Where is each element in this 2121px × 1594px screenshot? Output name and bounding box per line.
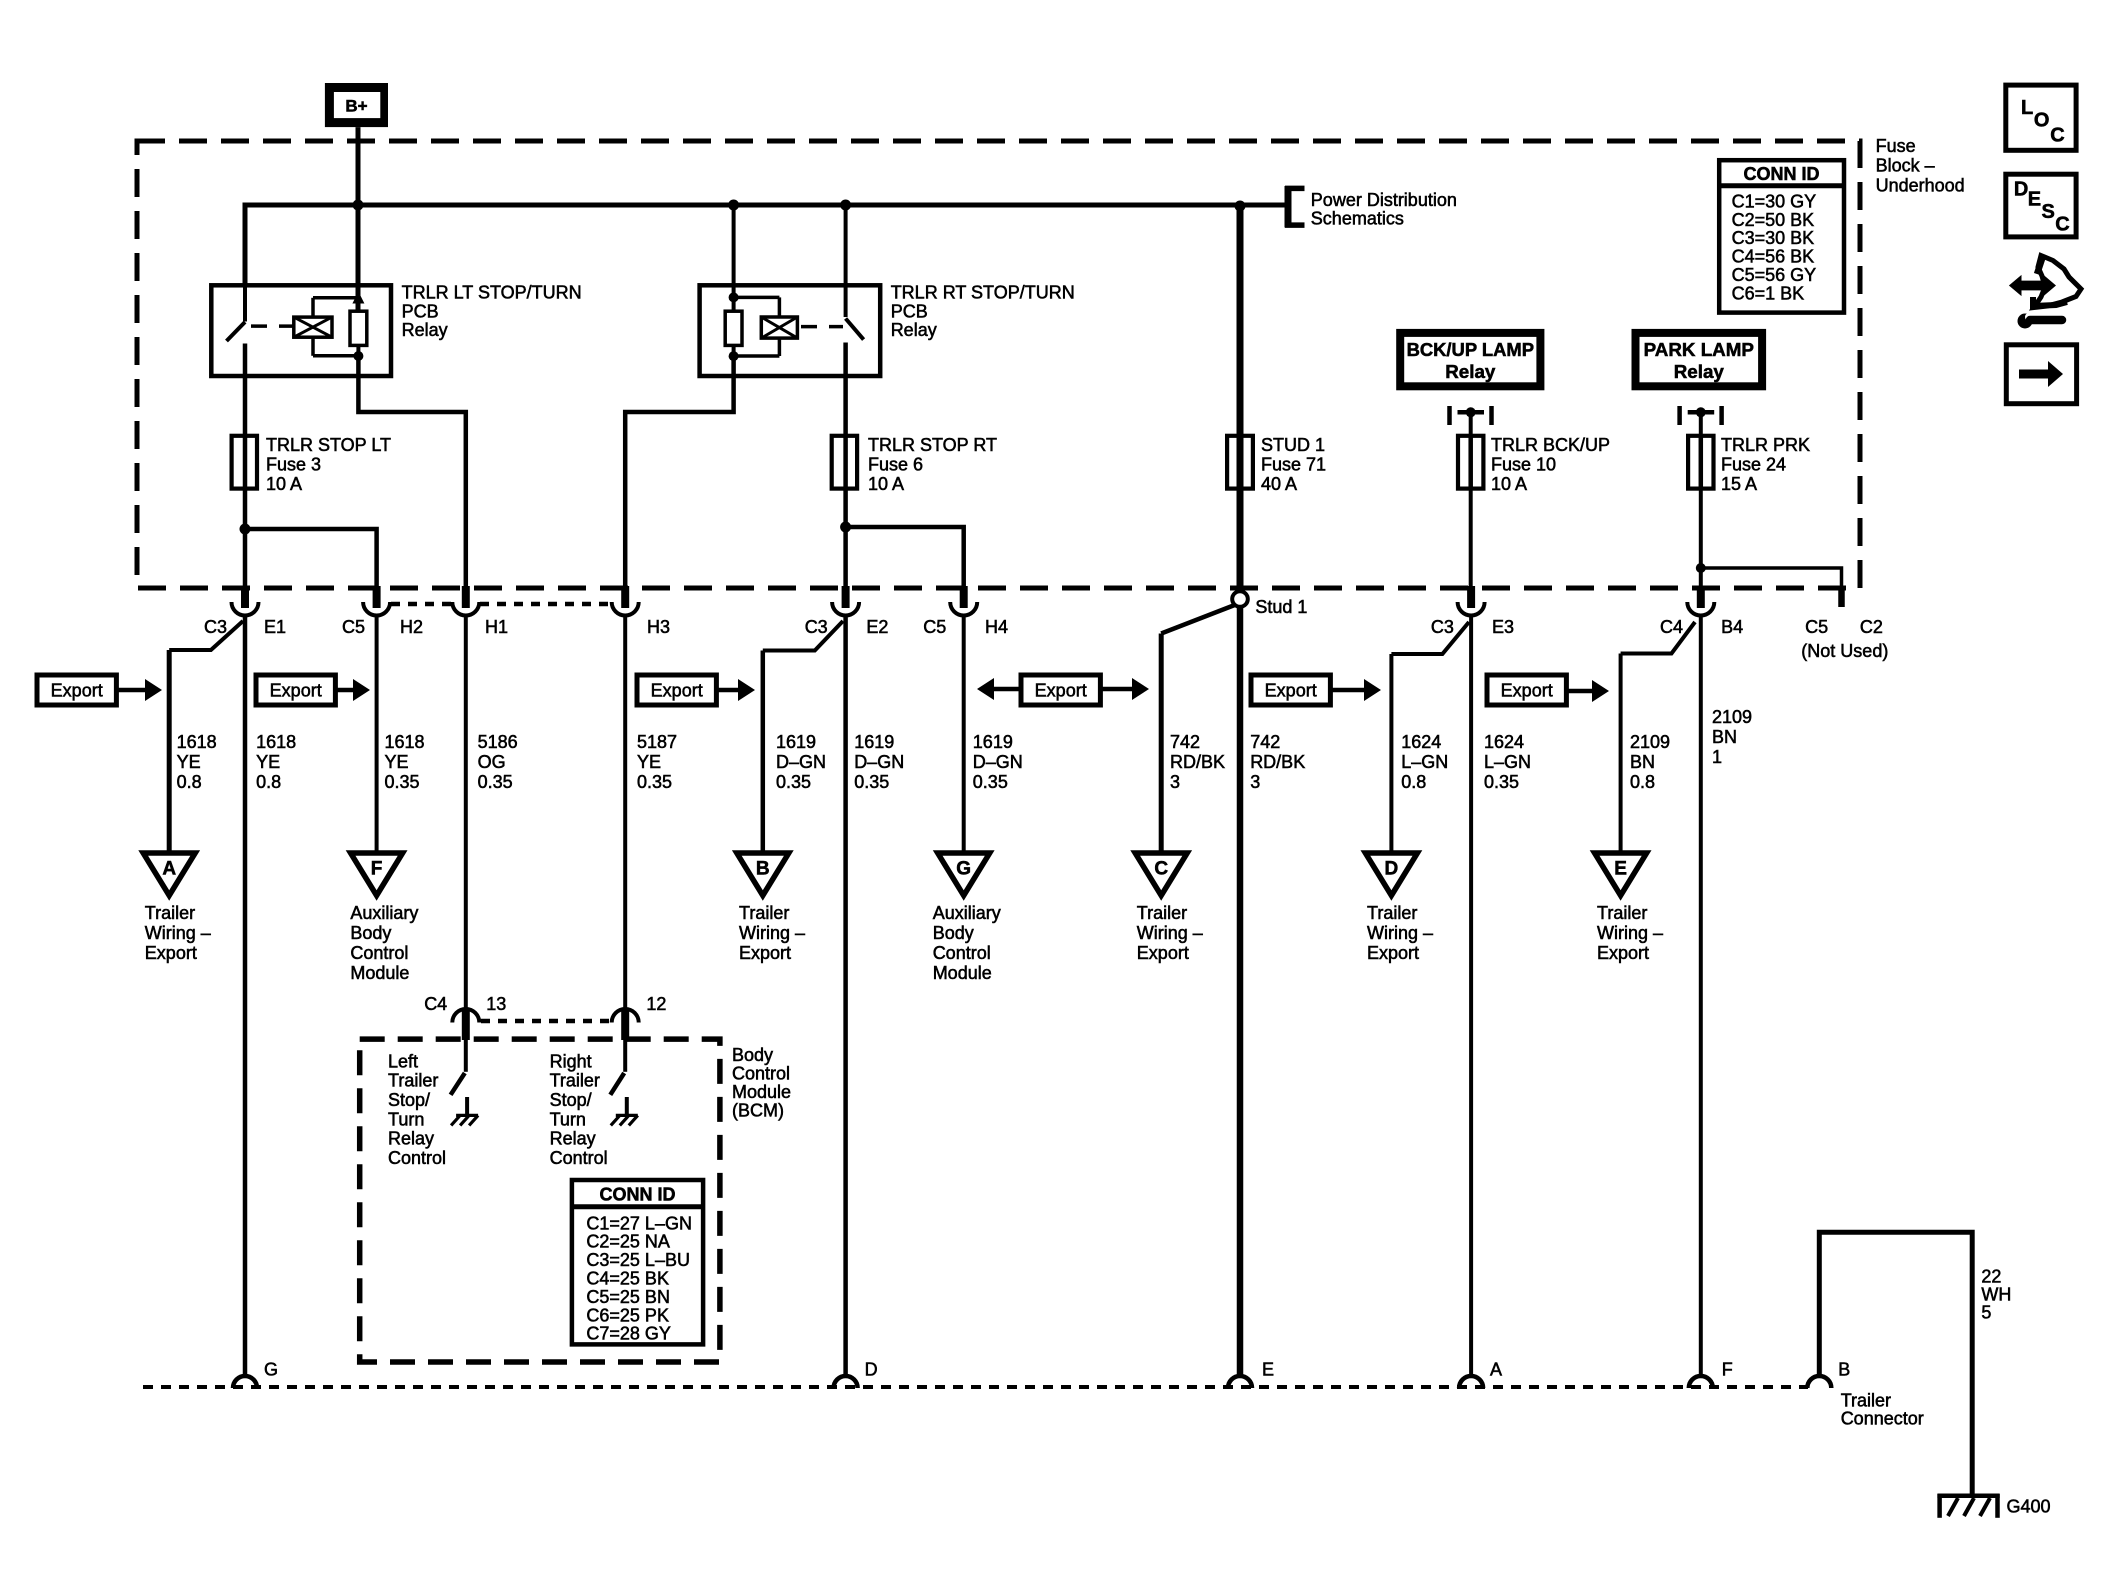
svg-text:Export: Export xyxy=(1367,943,1419,963)
svg-text:0.35: 0.35 xyxy=(637,772,672,792)
svg-text:Wiring –: Wiring – xyxy=(1137,923,1203,943)
svg-text:742: 742 xyxy=(1250,732,1280,752)
svg-text:C: C xyxy=(2050,125,2064,147)
svg-text:742: 742 xyxy=(1170,732,1200,752)
svg-text:40 A: 40 A xyxy=(1261,474,1297,494)
svg-text:Fuse 24: Fuse 24 xyxy=(1721,454,1786,474)
svg-text:C5: C5 xyxy=(1805,617,1828,637)
svg-text:Connector: Connector xyxy=(1841,1408,1924,1428)
svg-text:Control: Control xyxy=(350,943,408,963)
svg-text:Export: Export xyxy=(1035,681,1087,701)
svg-text:1618: 1618 xyxy=(385,732,425,752)
svg-text:D–GN: D–GN xyxy=(776,752,826,772)
svg-text:PCB: PCB xyxy=(891,301,928,321)
svg-text:Wiring –: Wiring – xyxy=(145,923,211,943)
svg-text:PCB: PCB xyxy=(402,301,439,321)
svg-text:Fuse 6: Fuse 6 xyxy=(868,454,923,474)
svg-text:Relay: Relay xyxy=(402,320,448,340)
svg-text:Export: Export xyxy=(651,681,703,701)
svg-text:BN: BN xyxy=(1712,727,1737,747)
svg-text:E: E xyxy=(1614,859,1627,880)
svg-text:10 A: 10 A xyxy=(1491,474,1527,494)
svg-text:1619: 1619 xyxy=(854,732,894,752)
svg-text:Relay: Relay xyxy=(388,1129,434,1149)
svg-text:B: B xyxy=(1838,1359,1850,1379)
svg-text:H1: H1 xyxy=(485,617,508,637)
svg-text:Relay: Relay xyxy=(550,1129,596,1149)
svg-text:G: G xyxy=(956,859,971,880)
svg-text:TRLR STOP RT: TRLR STOP RT xyxy=(868,435,997,455)
svg-text:C3=25 L–BU: C3=25 L–BU xyxy=(586,1250,690,1270)
svg-text:D–GN: D–GN xyxy=(854,752,904,772)
svg-text:L: L xyxy=(2021,97,2033,119)
svg-text:RD/BK: RD/BK xyxy=(1170,752,1225,772)
svg-text:YE: YE xyxy=(637,752,661,772)
svg-text:C5: C5 xyxy=(923,617,946,637)
svg-text:(Not Used): (Not Used) xyxy=(1801,641,1888,661)
svg-text:0.8: 0.8 xyxy=(256,772,281,792)
svg-text:1: 1 xyxy=(1712,747,1722,767)
svg-text:Schematics: Schematics xyxy=(1311,209,1404,229)
svg-text:Wiring –: Wiring – xyxy=(739,923,805,943)
svg-text:Block –: Block – xyxy=(1876,156,1935,176)
svg-text:E2: E2 xyxy=(866,617,888,637)
svg-text:10 A: 10 A xyxy=(868,474,904,494)
svg-text:D: D xyxy=(1385,859,1399,880)
svg-text:Trailer: Trailer xyxy=(388,1071,438,1091)
svg-text:Module: Module xyxy=(933,963,992,983)
svg-text:D: D xyxy=(2014,179,2028,201)
svg-text:Trailer: Trailer xyxy=(739,903,789,923)
svg-text:S: S xyxy=(2042,201,2055,223)
svg-text:12: 12 xyxy=(646,994,666,1014)
svg-text:3: 3 xyxy=(1170,772,1180,792)
svg-text:Trailer: Trailer xyxy=(1841,1390,1891,1410)
svg-text:Export: Export xyxy=(1137,943,1189,963)
svg-text:C3: C3 xyxy=(1431,617,1454,637)
svg-text:C7=28 GY: C7=28 GY xyxy=(586,1324,671,1344)
svg-text:22: 22 xyxy=(1981,1267,2001,1287)
svg-text:Relay: Relay xyxy=(1445,361,1496,382)
svg-text:C4: C4 xyxy=(424,994,447,1014)
svg-text:C3: C3 xyxy=(204,617,227,637)
svg-text:Control: Control xyxy=(732,1064,790,1084)
svg-text:5186: 5186 xyxy=(478,732,518,752)
svg-text:BN: BN xyxy=(1630,752,1655,772)
svg-text:0.35: 0.35 xyxy=(973,772,1008,792)
svg-text:TRLR STOP LT: TRLR STOP LT xyxy=(266,435,391,455)
svg-text:C5=25 BN: C5=25 BN xyxy=(586,1287,670,1307)
svg-text:PARK LAMP: PARK LAMP xyxy=(1644,339,1754,360)
svg-text:Trailer: Trailer xyxy=(1137,903,1187,923)
svg-text:B: B xyxy=(756,859,770,880)
svg-text:G400: G400 xyxy=(2007,1497,2051,1517)
svg-text:Export: Export xyxy=(270,681,322,701)
svg-text:Export: Export xyxy=(1501,681,1553,701)
svg-text:C2: C2 xyxy=(1860,617,1883,637)
svg-text:Auxiliary: Auxiliary xyxy=(350,903,418,923)
svg-text:Stud 1: Stud 1 xyxy=(1255,597,1307,617)
svg-text:C3=30 BK: C3=30 BK xyxy=(1732,228,1815,248)
svg-text:0.8: 0.8 xyxy=(1401,772,1426,792)
svg-text:Turn: Turn xyxy=(388,1109,424,1129)
svg-text:0.8: 0.8 xyxy=(1630,772,1655,792)
svg-text:Wiring –: Wiring – xyxy=(1597,923,1663,943)
svg-text:Fuse 3: Fuse 3 xyxy=(266,454,321,474)
svg-text:BCK/UP LAMP: BCK/UP LAMP xyxy=(1407,339,1534,360)
svg-text:2109: 2109 xyxy=(1712,707,1752,727)
svg-text:G: G xyxy=(264,1359,278,1379)
svg-text:0.35: 0.35 xyxy=(478,772,513,792)
svg-text:C: C xyxy=(2055,214,2069,236)
svg-text:2109: 2109 xyxy=(1630,732,1670,752)
svg-text:A: A xyxy=(162,859,176,880)
svg-text:Fuse 71: Fuse 71 xyxy=(1261,454,1326,474)
svg-text:C6=1 BK: C6=1 BK xyxy=(1732,283,1805,303)
svg-text:E: E xyxy=(1262,1359,1274,1379)
svg-text:F: F xyxy=(1722,1359,1733,1379)
svg-text:E: E xyxy=(2028,189,2041,211)
svg-text:Underhood: Underhood xyxy=(1876,175,1965,195)
svg-text:Left: Left xyxy=(388,1051,418,1071)
svg-text:3: 3 xyxy=(1250,772,1260,792)
svg-text:H2: H2 xyxy=(400,617,423,637)
svg-text:YE: YE xyxy=(177,752,201,772)
svg-text:Control: Control xyxy=(933,943,991,963)
svg-text:YE: YE xyxy=(256,752,280,772)
svg-text:1624: 1624 xyxy=(1401,732,1441,752)
svg-text:D: D xyxy=(865,1359,878,1379)
svg-text:OG: OG xyxy=(478,752,506,772)
svg-text:15 A: 15 A xyxy=(1721,474,1757,494)
svg-text:Trailer: Trailer xyxy=(1367,903,1417,923)
svg-text:0.35: 0.35 xyxy=(776,772,811,792)
svg-text:Wiring –: Wiring – xyxy=(1367,923,1433,943)
svg-text:C: C xyxy=(1154,859,1168,880)
svg-text:O: O xyxy=(2034,110,2050,132)
svg-text:Stop/: Stop/ xyxy=(550,1090,592,1110)
svg-text:C5: C5 xyxy=(342,617,365,637)
svg-text:1618: 1618 xyxy=(177,732,217,752)
svg-text:(BCM): (BCM) xyxy=(732,1101,784,1121)
svg-text:E3: E3 xyxy=(1492,617,1514,637)
svg-text:Export: Export xyxy=(1265,681,1317,701)
svg-text:Trailer: Trailer xyxy=(145,903,195,923)
svg-text:CONN ID: CONN ID xyxy=(600,1184,676,1204)
svg-text:Export: Export xyxy=(51,681,103,701)
svg-text:Fuse 10: Fuse 10 xyxy=(1491,454,1556,474)
svg-text:0.35: 0.35 xyxy=(385,772,420,792)
svg-text:Stop/: Stop/ xyxy=(388,1090,430,1110)
svg-text:Export: Export xyxy=(739,943,791,963)
svg-text:C1=27 L–GN: C1=27 L–GN xyxy=(586,1213,692,1233)
svg-text:Relay: Relay xyxy=(891,320,937,340)
svg-text:TRLR RT STOP/TURN: TRLR RT STOP/TURN xyxy=(891,283,1075,303)
svg-text:1619: 1619 xyxy=(973,732,1013,752)
svg-text:Control: Control xyxy=(388,1148,446,1168)
svg-text:Power Distribution: Power Distribution xyxy=(1311,190,1457,210)
svg-text:Turn: Turn xyxy=(550,1109,586,1129)
svg-text:C6=25 PK: C6=25 PK xyxy=(586,1305,669,1325)
svg-text:B4: B4 xyxy=(1721,617,1743,637)
svg-text:L–GN: L–GN xyxy=(1401,752,1448,772)
svg-text:Export: Export xyxy=(145,943,197,963)
svg-text:C3: C3 xyxy=(805,617,828,637)
svg-text:Control: Control xyxy=(550,1148,608,1168)
svg-text:5: 5 xyxy=(1981,1303,1991,1323)
svg-text:L–GN: L–GN xyxy=(1484,752,1531,772)
svg-text:TRLR PRK: TRLR PRK xyxy=(1721,435,1810,455)
svg-text:Relay: Relay xyxy=(1674,361,1725,382)
svg-text:Auxiliary: Auxiliary xyxy=(933,903,1001,923)
svg-text:B+: B+ xyxy=(345,97,367,116)
svg-text:YE: YE xyxy=(385,752,409,772)
svg-text:Trailer: Trailer xyxy=(550,1071,600,1091)
svg-text:H3: H3 xyxy=(647,617,670,637)
svg-text:TRLR BCK/UP: TRLR BCK/UP xyxy=(1491,435,1610,455)
svg-text:Body: Body xyxy=(732,1045,773,1065)
svg-text:1624: 1624 xyxy=(1484,732,1524,752)
svg-text:C2=25 NA: C2=25 NA xyxy=(586,1232,670,1252)
svg-text:C4=56 BK: C4=56 BK xyxy=(1732,247,1815,267)
svg-text:10 A: 10 A xyxy=(266,474,302,494)
svg-text:0.35: 0.35 xyxy=(854,772,889,792)
svg-text:H4: H4 xyxy=(985,617,1008,637)
svg-text:RD/BK: RD/BK xyxy=(1250,752,1305,772)
svg-text:0.35: 0.35 xyxy=(1484,772,1519,792)
svg-text:WH: WH xyxy=(1981,1285,2011,1305)
svg-text:C2=50 BK: C2=50 BK xyxy=(1732,210,1815,230)
svg-text:C5=56 GY: C5=56 GY xyxy=(1732,265,1817,285)
svg-text:Body: Body xyxy=(933,923,974,943)
svg-text:Right: Right xyxy=(550,1051,592,1071)
svg-text:Module: Module xyxy=(732,1082,791,1102)
svg-text:Trailer: Trailer xyxy=(1597,903,1647,923)
svg-text:Module: Module xyxy=(350,963,409,983)
svg-text:C1=30 GY: C1=30 GY xyxy=(1732,192,1817,212)
svg-text:0.8: 0.8 xyxy=(177,772,202,792)
svg-text:Body: Body xyxy=(350,923,391,943)
svg-text:D–GN: D–GN xyxy=(973,752,1023,772)
svg-text:A: A xyxy=(1490,1359,1502,1379)
svg-text:E1: E1 xyxy=(264,617,286,637)
svg-text:Fuse: Fuse xyxy=(1876,136,1916,156)
svg-text:13: 13 xyxy=(486,994,506,1014)
svg-text:1618: 1618 xyxy=(256,732,296,752)
svg-text:Export: Export xyxy=(1597,943,1649,963)
svg-text:TRLR LT STOP/TURN: TRLR LT STOP/TURN xyxy=(402,283,582,303)
svg-text:5187: 5187 xyxy=(637,732,677,752)
svg-text:F: F xyxy=(371,859,383,880)
svg-text:STUD 1: STUD 1 xyxy=(1261,435,1325,455)
svg-text:CONN ID: CONN ID xyxy=(1744,164,1820,184)
svg-text:C4=25 BK: C4=25 BK xyxy=(586,1269,669,1289)
svg-text:1619: 1619 xyxy=(776,732,816,752)
svg-text:C4: C4 xyxy=(1660,617,1683,637)
